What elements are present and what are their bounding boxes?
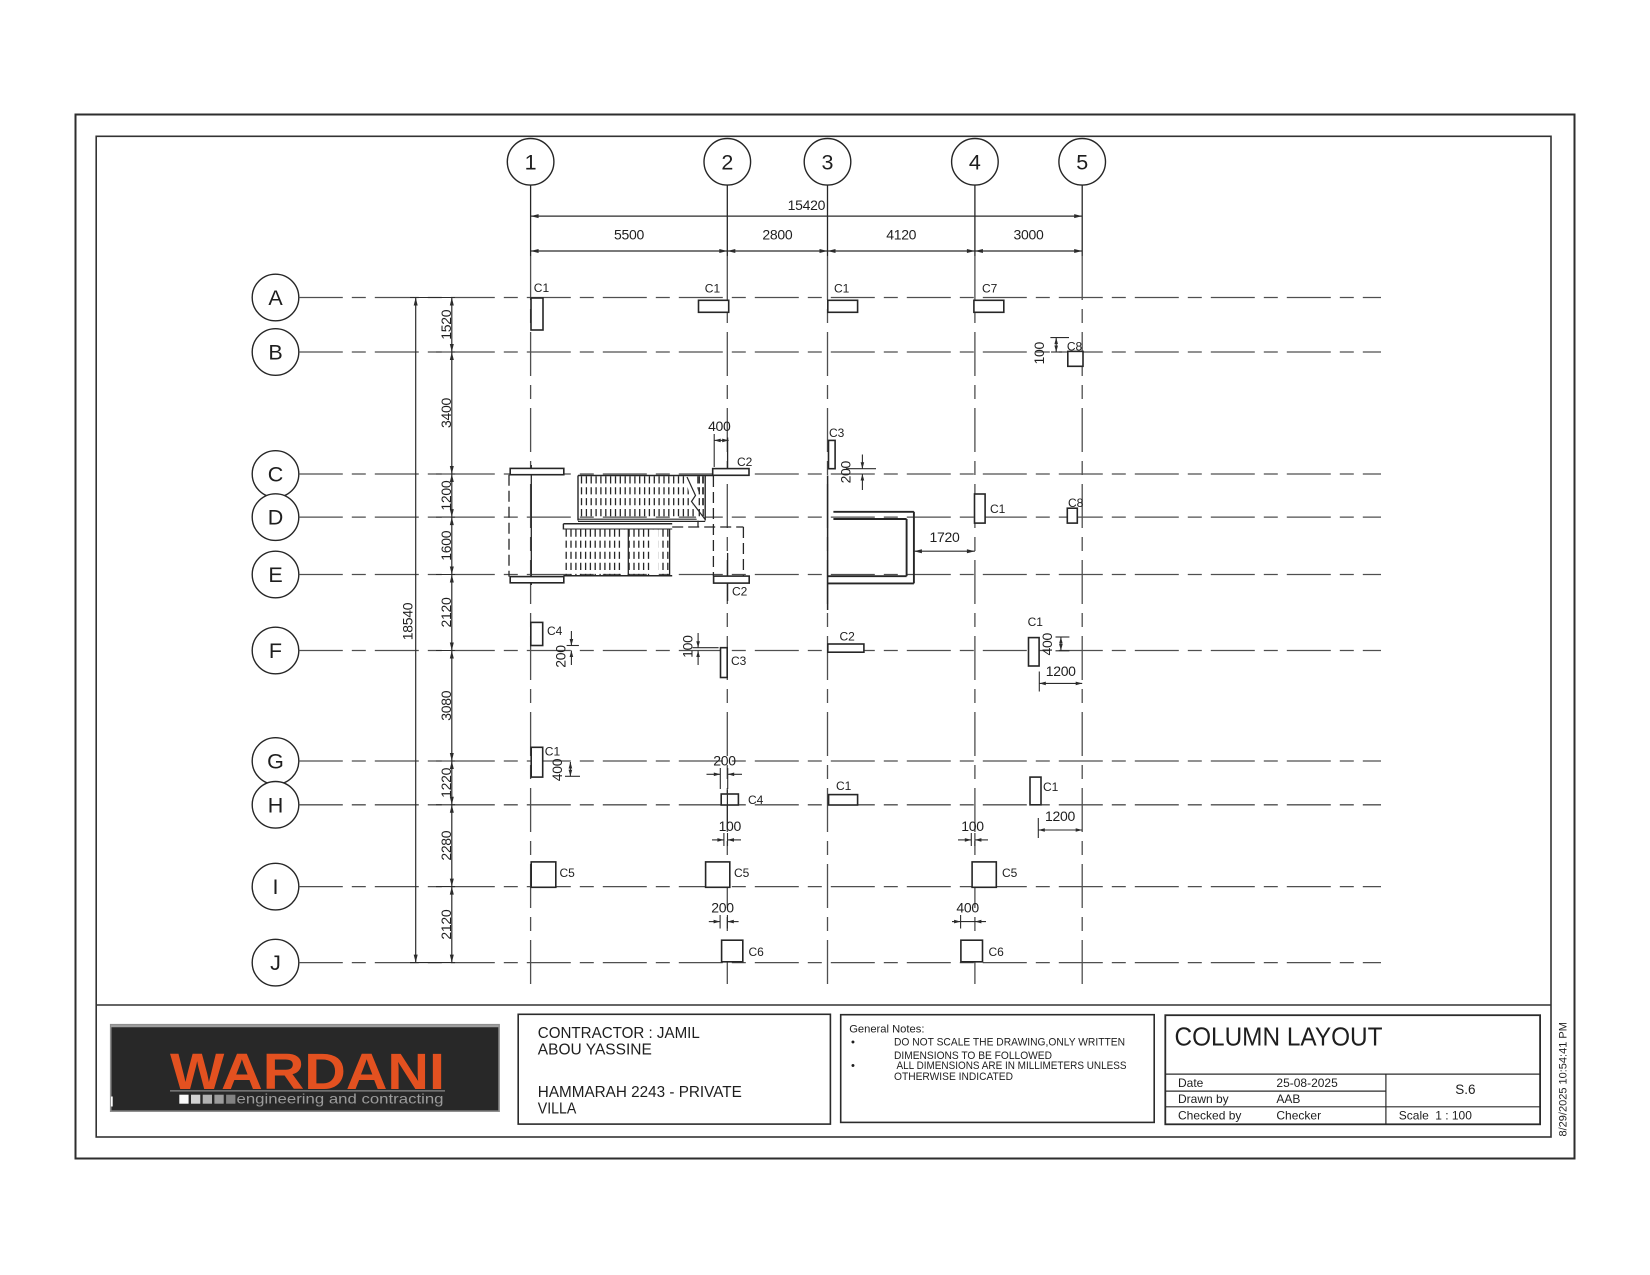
svg-text:1200: 1200 (438, 480, 454, 510)
svg-text:400: 400 (549, 758, 565, 781)
svg-text:1720: 1720 (930, 529, 960, 545)
svg-text:1600: 1600 (438, 530, 454, 560)
svg-text:1200: 1200 (1045, 808, 1075, 824)
svg-text:C5: C5 (560, 866, 576, 880)
svg-text:S.6: S.6 (1455, 1082, 1475, 1097)
svg-text:3000: 3000 (1014, 227, 1044, 243)
svg-text:Scale: Scale (1399, 1109, 1429, 1123)
svg-text:J: J (270, 951, 281, 975)
svg-text:C1: C1 (1043, 780, 1059, 794)
svg-text:C5: C5 (1002, 866, 1018, 880)
svg-text:1200: 1200 (1046, 663, 1076, 679)
svg-text:G: G (267, 750, 284, 774)
svg-text:5500: 5500 (614, 227, 644, 243)
svg-text:C6: C6 (989, 945, 1005, 959)
svg-text:2800: 2800 (762, 227, 792, 243)
svg-text:C1: C1 (545, 745, 561, 759)
svg-text:C1: C1 (534, 281, 550, 295)
svg-text:Date: Date (1178, 1076, 1204, 1090)
svg-text:C5: C5 (734, 866, 750, 880)
svg-text:3400: 3400 (438, 398, 454, 428)
svg-text:C6: C6 (749, 945, 765, 959)
svg-text:F: F (269, 639, 282, 663)
svg-text:1 : 100: 1 : 100 (1435, 1109, 1472, 1123)
svg-text:3080: 3080 (438, 690, 454, 720)
svg-text:1220: 1220 (438, 767, 454, 797)
svg-text:18540: 18540 (400, 602, 416, 640)
svg-text:AAB: AAB (1276, 1092, 1300, 1106)
svg-text:200: 200 (711, 900, 734, 916)
svg-text:D: D (268, 506, 284, 530)
svg-text:OTHERWISE INDICATED: OTHERWISE INDICATED (894, 1071, 1013, 1083)
svg-text:DO NOT SCALE THE DRAWING,ONLY: DO NOT SCALE THE DRAWING,ONLY WRITTEN (894, 1037, 1125, 1049)
svg-text:•: • (851, 1060, 855, 1072)
svg-text:VILLA: VILLA (538, 1100, 577, 1117)
svg-text:I: I (273, 875, 279, 899)
svg-text:C: C (268, 463, 284, 487)
svg-text:Drawn by: Drawn by (1178, 1092, 1229, 1106)
svg-text:Checker: Checker (1276, 1109, 1321, 1123)
svg-text:C1: C1 (836, 779, 852, 793)
svg-text:100: 100 (1031, 342, 1047, 365)
svg-text:ABOU YASSINE: ABOU YASSINE (538, 1042, 652, 1059)
svg-text:400: 400 (956, 900, 979, 916)
svg-text:200: 200 (713, 753, 736, 769)
svg-text:4: 4 (969, 150, 981, 174)
svg-text:200: 200 (553, 645, 569, 668)
svg-text:C3: C3 (731, 654, 747, 668)
svg-text:200: 200 (838, 460, 854, 483)
svg-text:General Notes:: General Notes: (849, 1023, 924, 1035)
svg-text:HAMMARAH 2243 - PRIVATE: HAMMARAH 2243 - PRIVATE (538, 1084, 742, 1101)
svg-text:2280: 2280 (438, 830, 454, 860)
svg-text:C4: C4 (547, 624, 563, 638)
svg-text:C2: C2 (840, 630, 856, 644)
svg-text:C1: C1 (705, 282, 721, 296)
svg-text:E: E (268, 563, 282, 587)
svg-text:C8: C8 (1068, 496, 1084, 510)
svg-text:C1: C1 (1028, 615, 1044, 629)
svg-text:C8: C8 (1067, 339, 1083, 353)
svg-text:2120: 2120 (438, 597, 454, 627)
svg-text:H: H (268, 793, 284, 817)
svg-text:5: 5 (1076, 150, 1088, 174)
svg-text:C2: C2 (732, 585, 748, 599)
svg-text:Checked by: Checked by (1178, 1109, 1241, 1123)
svg-text:400: 400 (708, 418, 731, 434)
svg-text:3: 3 (822, 150, 834, 174)
svg-text:engineering and contracting: engineering and contracting (237, 1090, 444, 1106)
svg-text:C1: C1 (990, 502, 1006, 516)
svg-text:15420: 15420 (788, 197, 826, 213)
svg-text:C2: C2 (737, 455, 753, 469)
svg-text:1520: 1520 (438, 309, 454, 339)
svg-text:C3: C3 (829, 426, 845, 440)
svg-text:C1: C1 (834, 282, 850, 296)
svg-text:25-08-2025: 25-08-2025 (1276, 1076, 1338, 1090)
svg-text:•: • (851, 1037, 855, 1049)
svg-text:COLUMN LAYOUT: COLUMN LAYOUT (1175, 1021, 1383, 1051)
svg-text:100: 100 (679, 635, 695, 658)
svg-text:CONTRACTOR : JAMIL: CONTRACTOR : JAMIL (538, 1025, 700, 1042)
svg-text:4120: 4120 (886, 227, 916, 243)
svg-text:B: B (268, 341, 282, 365)
svg-text:8/29/2025 10:54:41 PM: 8/29/2025 10:54:41 PM (1558, 1022, 1570, 1136)
svg-text:A: A (268, 286, 283, 310)
svg-text:1: 1 (525, 150, 537, 174)
svg-text:100: 100 (719, 818, 742, 834)
svg-text:2120: 2120 (438, 909, 454, 939)
svg-text:C7: C7 (982, 282, 998, 296)
svg-text:400: 400 (1039, 633, 1055, 656)
svg-text:C4: C4 (748, 793, 764, 807)
svg-text:100: 100 (961, 818, 984, 834)
svg-text:2: 2 (721, 150, 733, 174)
